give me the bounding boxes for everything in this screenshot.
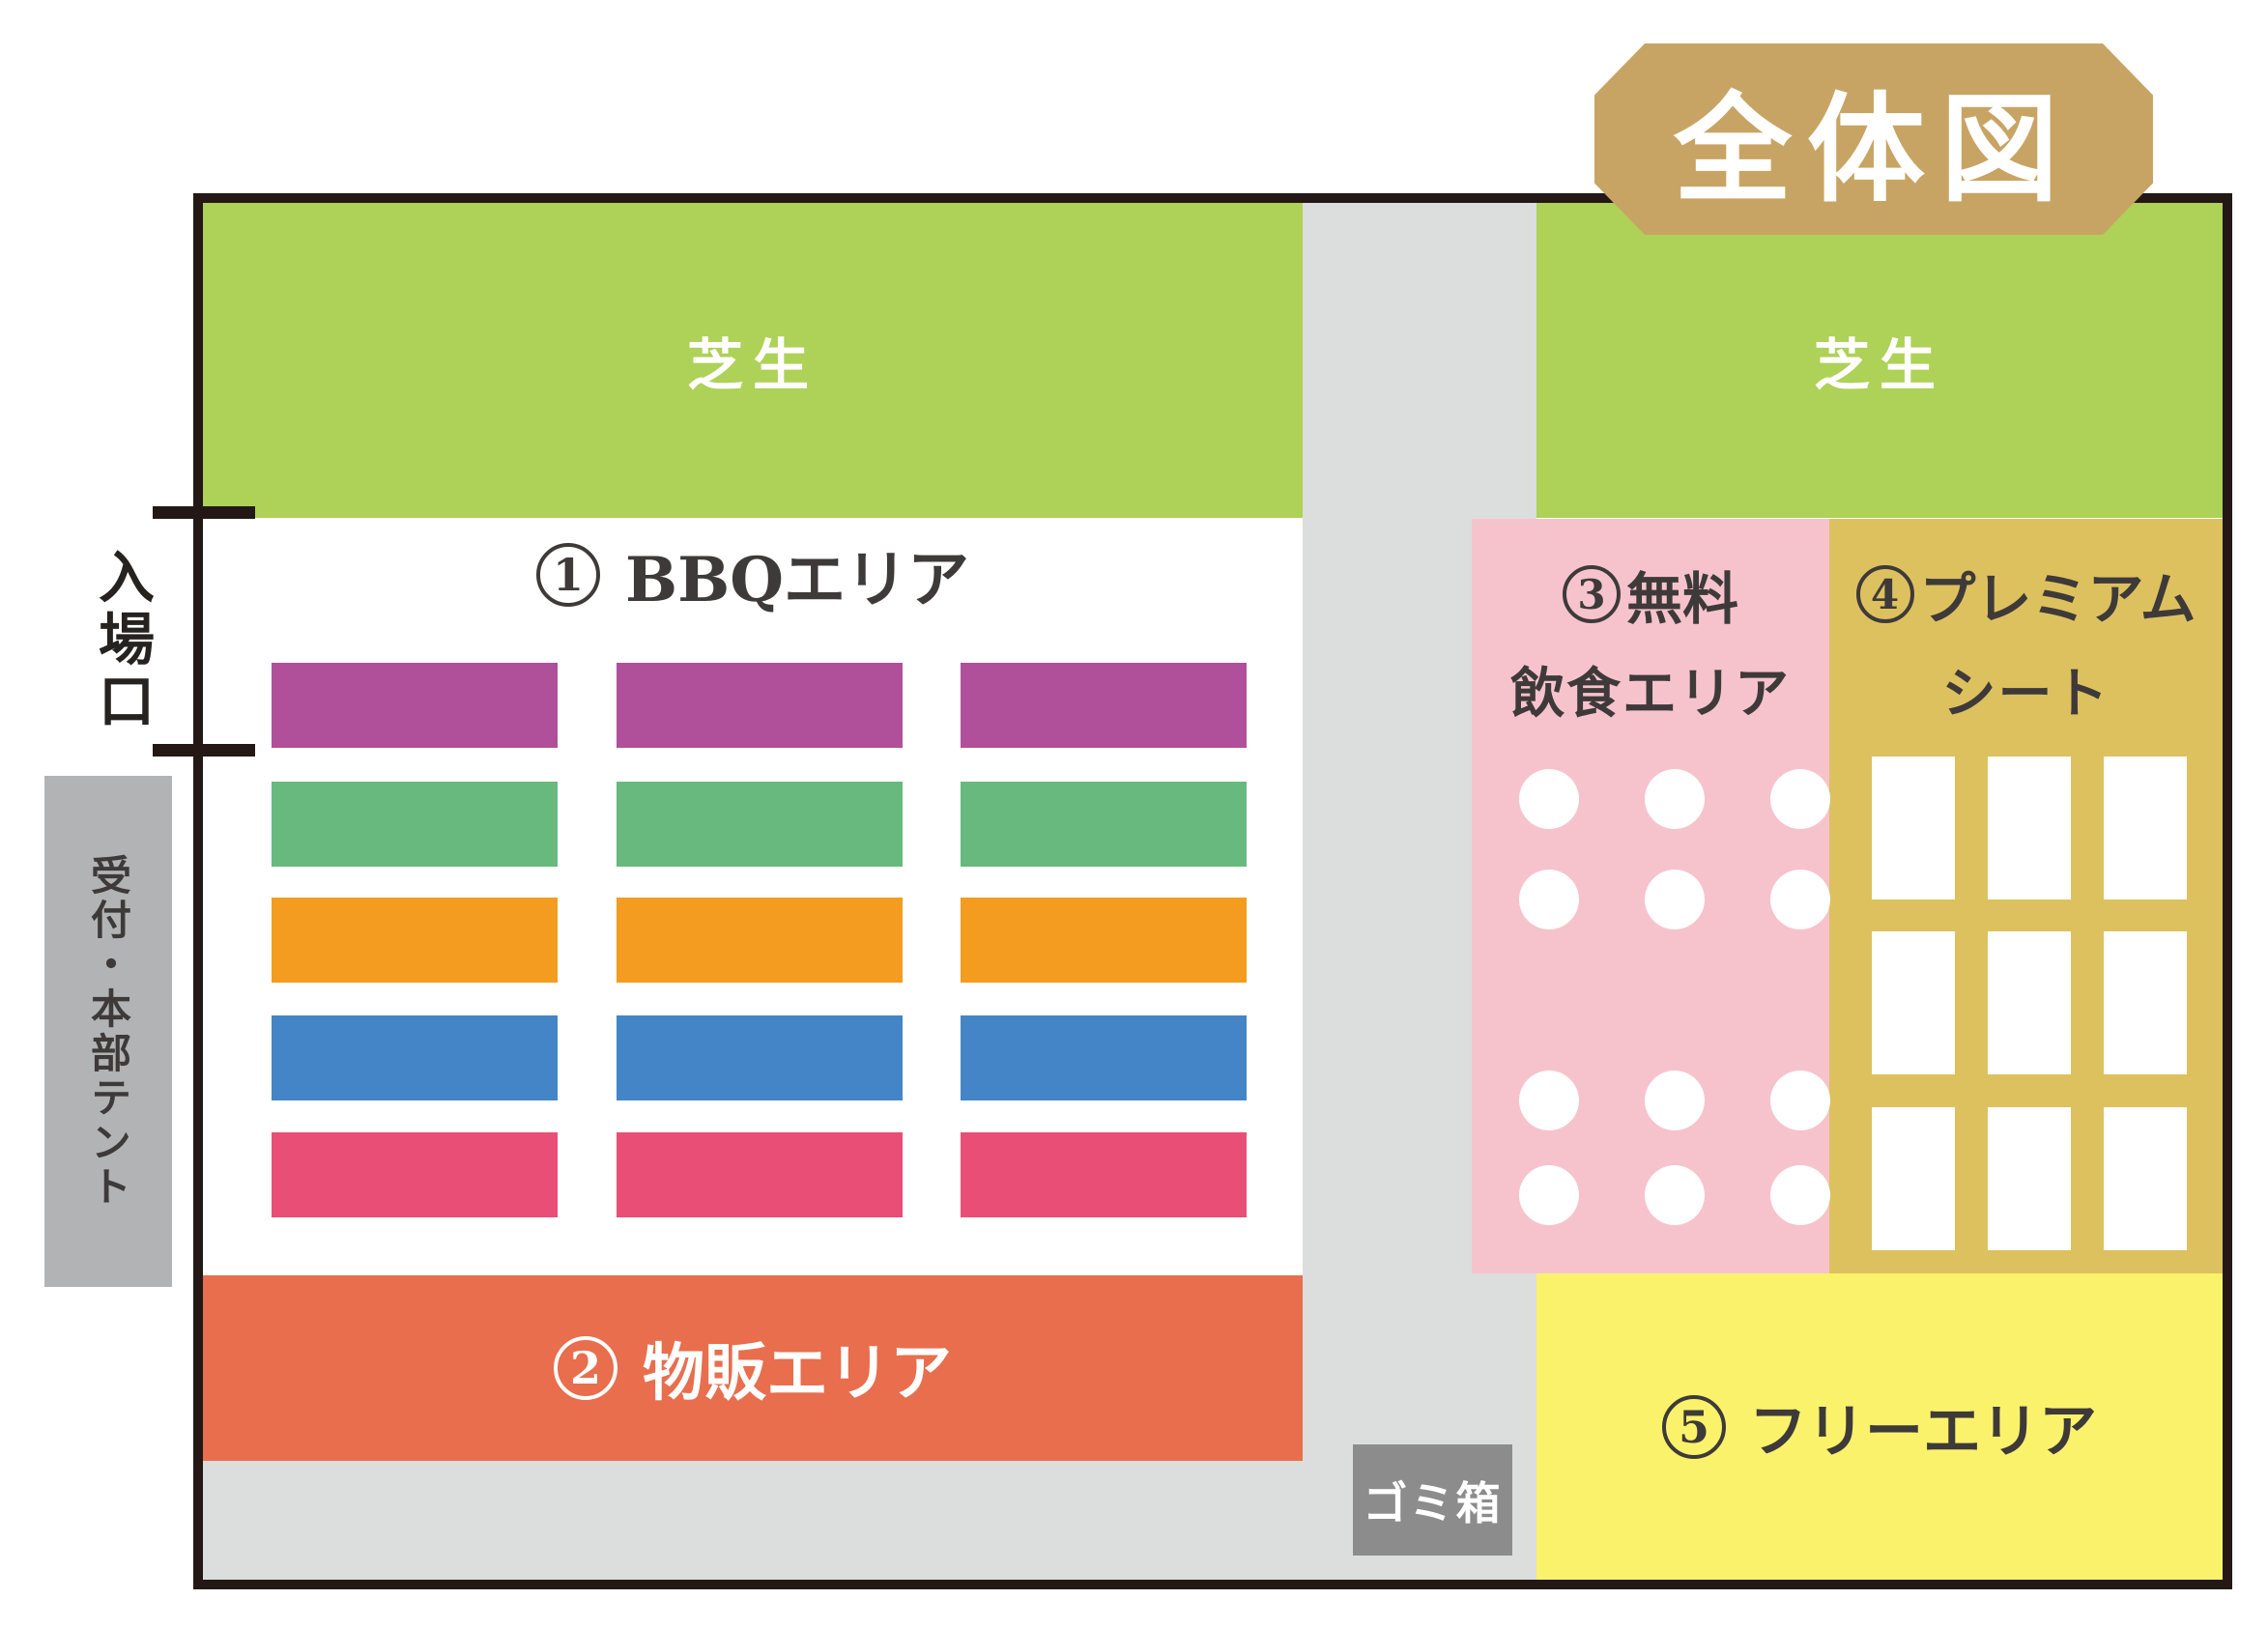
venue-map: 芝生 芝生 1 BBQエリア xyxy=(0,0,2268,1628)
premium-seat-square xyxy=(1872,931,1955,1074)
premium-seat-square xyxy=(1988,931,2071,1074)
bbq-table xyxy=(272,782,558,867)
map-frame-inner: 芝生 芝生 1 BBQエリア xyxy=(203,203,2223,1580)
food-seat-circle xyxy=(1519,1165,1579,1225)
bbq-table xyxy=(617,1015,903,1100)
bbq-table xyxy=(617,782,903,867)
food-seat-circle xyxy=(1645,1165,1705,1225)
bbq-number-icon: 1 xyxy=(536,543,600,607)
food-seat-circle xyxy=(1645,769,1705,829)
premium-label: 4 プレミアム シート xyxy=(1829,559,2223,728)
bbq-table xyxy=(961,1132,1247,1217)
bbq-table xyxy=(272,1015,558,1100)
merch-number-icon: 2 xyxy=(554,1336,617,1400)
trash-label: ゴミ箱 xyxy=(1364,1469,1503,1532)
entrance-tick-bottom xyxy=(153,744,255,757)
premium-label-line1: プレミアム xyxy=(1920,554,2196,635)
premium-number-icon: 4 xyxy=(1856,565,1914,623)
bbq-table xyxy=(961,1015,1247,1100)
premium-seat-square xyxy=(2104,1107,2187,1250)
free-area-number-icon: 5 xyxy=(1662,1395,1726,1459)
entrance-tick-top xyxy=(153,506,255,519)
bbq-table xyxy=(961,898,1247,983)
bbq-table xyxy=(961,782,1247,867)
food-seat-circle xyxy=(1770,769,1830,829)
food-seat-circle xyxy=(1645,1071,1705,1130)
free-area: 5 フリーエリア xyxy=(1536,1273,2223,1580)
page-title: 全体図 xyxy=(1674,54,2074,225)
food-seat-circle xyxy=(1519,769,1579,829)
food-seat-circle xyxy=(1770,870,1830,929)
bbq-table xyxy=(272,1132,558,1217)
entrance-label: 入場口 xyxy=(58,524,186,757)
lawn-area-right: 芝生 xyxy=(1536,203,2223,518)
premium-seat-square xyxy=(1872,1107,1955,1250)
premium-seat-square xyxy=(2104,757,2187,900)
food-seat-circle xyxy=(1519,870,1579,929)
lawn-left-label: 芝生 xyxy=(687,320,818,401)
free-food-area: 3 無料 飲食エリア xyxy=(1472,519,1829,1273)
premium-seat-square xyxy=(2104,931,2187,1074)
map-frame: 芝生 芝生 1 BBQエリア xyxy=(193,193,2232,1589)
premium-seat-area: 4 プレミアム シート xyxy=(1829,519,2223,1273)
bbq-table xyxy=(272,898,558,983)
bbq-table xyxy=(961,663,1247,748)
food-seat-circle xyxy=(1770,1165,1830,1225)
free-food-label: 3 無料 飲食エリア xyxy=(1472,559,1829,728)
free-food-label-line1: 無料 xyxy=(1626,554,1738,635)
premium-seat-square xyxy=(1988,1107,2071,1250)
premium-seat-square xyxy=(1988,757,2071,900)
premium-label-line2: シート xyxy=(1829,650,2223,728)
reception-tent-box: 受付・本部テント xyxy=(44,776,172,1287)
merch-label-text: 物販エリア xyxy=(643,1324,952,1413)
bbq-table xyxy=(617,663,903,748)
bbq-table xyxy=(617,1132,903,1217)
bbq-table xyxy=(272,663,558,748)
title-badge: 全体図 xyxy=(1594,43,2153,235)
merch-area: 2 物販エリア xyxy=(203,1275,1303,1461)
trash-box: ゴミ箱 xyxy=(1353,1444,1512,1556)
food-seat-circle xyxy=(1519,1071,1579,1130)
food-seat-circle xyxy=(1770,1071,1830,1130)
lawn-area-left: 芝生 xyxy=(203,203,1303,518)
food-seat-circle xyxy=(1645,870,1705,929)
free-food-label-line2: 飲食エリア xyxy=(1472,650,1829,728)
bbq-area-label: 1 BBQエリア xyxy=(203,522,1303,628)
free-area-label-text: フリーエリア xyxy=(1749,1385,2097,1469)
free-food-number-icon: 3 xyxy=(1563,565,1621,623)
premium-seat-square xyxy=(1872,757,1955,900)
bbq-label-text: BBQエリア xyxy=(625,530,969,619)
lawn-right-label: 芝生 xyxy=(1814,320,1945,401)
walkway-bottom xyxy=(203,1461,1303,1580)
bbq-table xyxy=(617,898,903,983)
